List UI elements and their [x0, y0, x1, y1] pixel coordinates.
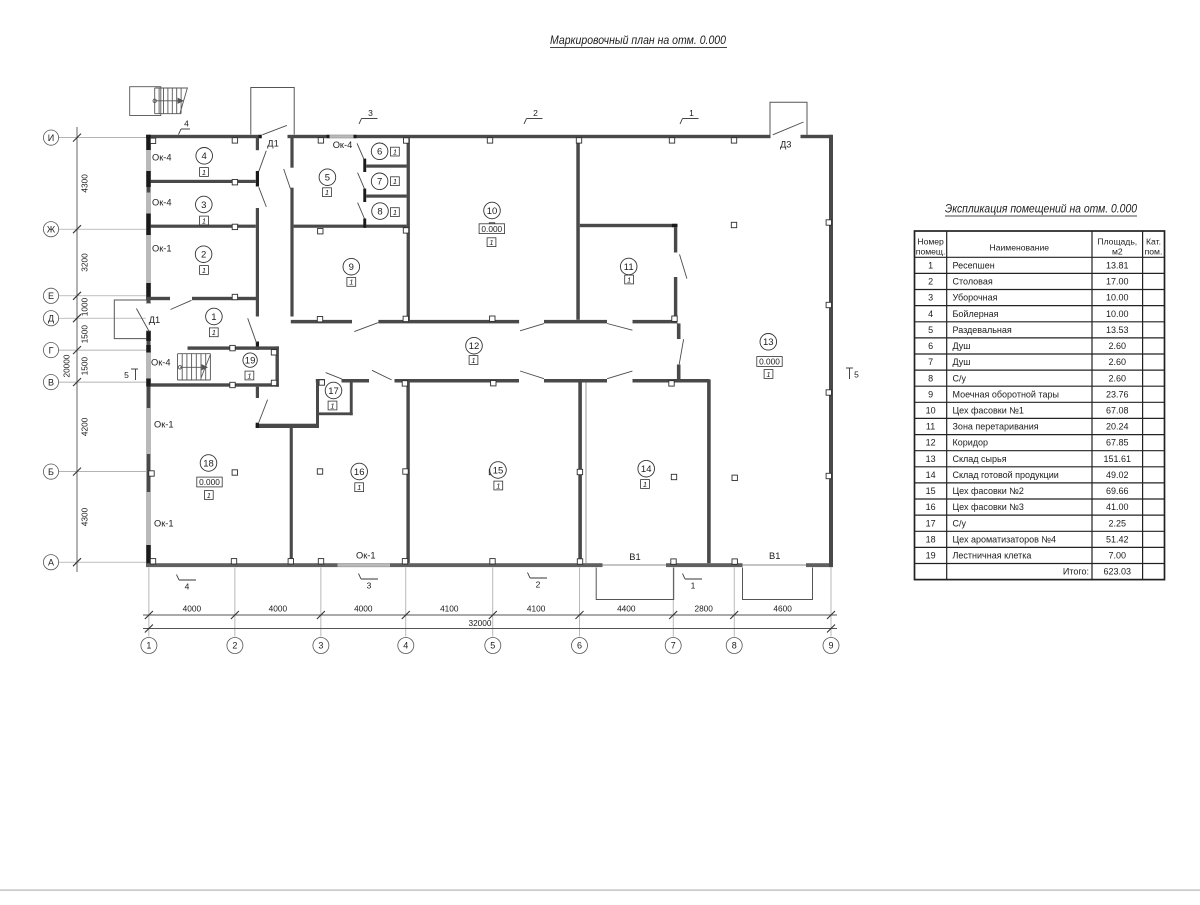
svg-text:2.60: 2.60: [1109, 357, 1127, 367]
svg-text:4600: 4600: [773, 604, 792, 614]
svg-text:Цех ароматизаторов №4: Цех ароматизаторов №4: [953, 534, 1057, 544]
svg-text:16: 16: [926, 502, 936, 512]
svg-text:3200: 3200: [80, 253, 90, 272]
svg-text:0.000: 0.000: [199, 477, 220, 487]
svg-text:3: 3: [368, 108, 373, 118]
svg-text:1: 1: [247, 371, 251, 380]
svg-text:Кат.: Кат.: [1146, 237, 1161, 247]
svg-text:1: 1: [349, 278, 353, 287]
svg-text:1: 1: [211, 312, 216, 323]
svg-text:17.00: 17.00: [1106, 277, 1129, 287]
svg-text:1: 1: [689, 108, 694, 118]
svg-text:С/у: С/у: [953, 518, 967, 528]
svg-text:1: 1: [212, 328, 216, 337]
svg-text:Столовая: Столовая: [953, 277, 993, 287]
svg-text:7: 7: [671, 641, 676, 651]
svg-text:7: 7: [928, 357, 933, 367]
svg-text:2: 2: [201, 250, 206, 261]
svg-text:69.66: 69.66: [1106, 486, 1129, 496]
svg-text:13.53: 13.53: [1106, 325, 1129, 335]
svg-text:Склад готовой продукции: Склад готовой продукции: [953, 470, 1059, 480]
svg-text:19: 19: [245, 356, 256, 367]
svg-text:4200: 4200: [80, 417, 90, 436]
svg-text:14: 14: [641, 464, 652, 475]
svg-text:Коридор: Коридор: [953, 438, 989, 448]
svg-text:11: 11: [926, 422, 935, 432]
svg-text:18: 18: [926, 534, 936, 544]
svg-text:5: 5: [124, 370, 129, 380]
svg-text:3: 3: [201, 200, 206, 211]
svg-text:Площадь,: Площадь,: [1097, 237, 1137, 247]
svg-text:9: 9: [828, 641, 833, 651]
svg-text:1: 1: [330, 401, 334, 410]
svg-text:Экспликация помещений на отм.: Экспликация помещений на отм. 0.000: [945, 204, 1138, 216]
svg-text:Ресепшен: Ресепшен: [953, 261, 995, 271]
svg-text:Раздевальная: Раздевальная: [953, 325, 1012, 335]
svg-text:1500: 1500: [80, 356, 90, 375]
svg-text:9: 9: [349, 262, 354, 273]
svg-text:1: 1: [489, 238, 493, 247]
svg-text:1: 1: [393, 177, 397, 186]
svg-text:1: 1: [496, 481, 500, 490]
svg-text:1: 1: [146, 641, 151, 651]
svg-text:13: 13: [763, 337, 774, 348]
svg-text:9: 9: [928, 389, 933, 399]
svg-text:Д1: Д1: [149, 315, 160, 325]
svg-text:3: 3: [367, 581, 372, 591]
svg-text:2: 2: [536, 580, 541, 590]
svg-text:4000: 4000: [183, 604, 202, 614]
svg-text:4300: 4300: [80, 507, 90, 526]
svg-text:1: 1: [202, 216, 206, 225]
svg-text:Д3: Д3: [780, 140, 791, 150]
svg-text:4000: 4000: [269, 604, 288, 614]
svg-text:17: 17: [328, 386, 339, 397]
svg-text:1: 1: [325, 188, 329, 197]
svg-text:67.08: 67.08: [1106, 406, 1129, 416]
svg-text:Ок-1: Ок-1: [154, 519, 174, 529]
svg-text:Г: Г: [49, 345, 54, 355]
svg-text:Ок-1: Ок-1: [154, 420, 174, 430]
svg-text:Ок-1: Ок-1: [152, 244, 172, 254]
svg-text:Лестничная клетка: Лестничная клетка: [953, 551, 1032, 561]
svg-text:Цех фасовки №2: Цех фасовки №2: [953, 486, 1024, 496]
svg-text:4: 4: [928, 309, 933, 319]
svg-text:17: 17: [926, 518, 936, 528]
svg-text:4100: 4100: [440, 604, 459, 614]
svg-text:3: 3: [318, 641, 323, 651]
svg-text:Ок-1: Ок-1: [356, 551, 376, 561]
svg-text:В1: В1: [769, 551, 780, 561]
svg-text:пом.: пом.: [1145, 247, 1163, 257]
svg-text:1: 1: [207, 491, 211, 500]
svg-text:8: 8: [928, 373, 933, 383]
svg-text:Ж: Ж: [47, 224, 56, 234]
svg-text:32000: 32000: [468, 618, 491, 628]
svg-text:Моечная оборотной тары: Моечная оборотной тары: [953, 389, 1059, 399]
svg-text:Д1: Д1: [267, 139, 278, 149]
svg-text:6: 6: [377, 147, 382, 158]
svg-text:10: 10: [926, 406, 936, 416]
svg-text:2: 2: [928, 277, 933, 287]
svg-text:20000: 20000: [62, 354, 72, 377]
svg-text:12: 12: [926, 438, 936, 448]
svg-text:4300: 4300: [80, 174, 90, 193]
svg-text:151.61: 151.61: [1104, 454, 1132, 464]
svg-text:3: 3: [928, 293, 933, 303]
svg-text:67.85: 67.85: [1106, 438, 1129, 448]
svg-text:7: 7: [377, 177, 382, 188]
svg-text:10: 10: [487, 206, 498, 217]
svg-text:4: 4: [184, 118, 189, 128]
svg-text:1: 1: [393, 208, 397, 217]
svg-text:13: 13: [926, 454, 936, 464]
svg-text:6: 6: [577, 641, 582, 651]
svg-text:18: 18: [203, 458, 214, 469]
svg-text:1: 1: [202, 168, 206, 177]
svg-text:49.02: 49.02: [1106, 470, 1129, 480]
svg-text:4100: 4100: [527, 604, 546, 614]
svg-text:2.60: 2.60: [1109, 341, 1127, 351]
svg-text:23.76: 23.76: [1106, 389, 1129, 399]
svg-text:1000: 1000: [80, 297, 90, 316]
svg-text:Итого:: Итого:: [1063, 567, 1089, 577]
svg-text:2.25: 2.25: [1109, 518, 1127, 528]
svg-text:Маркировочный план на отм. 0.0: Маркировочный план на отм. 0.000: [550, 35, 727, 47]
svg-text:15: 15: [926, 486, 936, 496]
svg-text:2.60: 2.60: [1109, 373, 1127, 383]
svg-text:8: 8: [732, 641, 737, 651]
svg-text:2800: 2800: [694, 604, 713, 614]
svg-text:4400: 4400: [617, 604, 636, 614]
svg-text:1500: 1500: [80, 325, 90, 344]
svg-text:Ок-4: Ок-4: [151, 358, 171, 368]
svg-text:Ок-4: Ок-4: [152, 198, 172, 208]
svg-text:4: 4: [202, 151, 207, 162]
svg-text:Душ: Душ: [953, 341, 971, 351]
svg-text:Цех фасовки №1: Цех фасовки №1: [953, 406, 1024, 416]
svg-text:Е: Е: [48, 291, 54, 301]
svg-text:51.42: 51.42: [1106, 534, 1129, 544]
svg-text:Ок-4: Ок-4: [152, 153, 172, 163]
svg-text:В1: В1: [629, 552, 640, 562]
svg-text:10.00: 10.00: [1106, 309, 1129, 319]
svg-text:Наименование: Наименование: [990, 243, 1050, 253]
svg-text:Склад сырья: Склад сырья: [953, 454, 1007, 464]
svg-text:Душ: Душ: [953, 357, 971, 367]
svg-text:1: 1: [928, 261, 933, 271]
svg-text:И: И: [48, 133, 54, 143]
svg-text:Ок-4: Ок-4: [333, 140, 353, 150]
svg-text:15: 15: [493, 465, 504, 476]
svg-text:10.00: 10.00: [1106, 293, 1129, 303]
svg-text:Номер: Номер: [917, 237, 944, 247]
svg-text:В: В: [48, 377, 54, 387]
svg-text:14: 14: [926, 470, 936, 480]
svg-text:623.03: 623.03: [1104, 567, 1132, 577]
svg-text:12: 12: [469, 341, 480, 352]
svg-text:Д: Д: [48, 313, 54, 323]
svg-text:7.00: 7.00: [1109, 551, 1127, 561]
svg-text:м2: м2: [1112, 247, 1123, 257]
svg-text:5: 5: [490, 641, 495, 651]
svg-text:2: 2: [533, 108, 538, 118]
svg-text:Б: Б: [48, 467, 54, 477]
svg-text:8: 8: [377, 207, 382, 218]
svg-text:1: 1: [471, 356, 475, 365]
svg-text:20.24: 20.24: [1106, 422, 1129, 432]
svg-text:13.81: 13.81: [1106, 261, 1129, 271]
svg-text:19: 19: [926, 551, 936, 561]
svg-text:Зона перетаривания: Зона перетаривания: [953, 422, 1039, 432]
svg-text:0.000: 0.000: [481, 224, 502, 234]
svg-text:1: 1: [202, 266, 206, 275]
svg-text:1: 1: [766, 370, 770, 379]
svg-text:11: 11: [624, 262, 634, 273]
svg-text:0.000: 0.000: [759, 357, 780, 367]
svg-text:Бойлерная: Бойлерная: [953, 309, 999, 319]
svg-text:помещ.: помещ.: [916, 247, 946, 257]
svg-text:5: 5: [928, 325, 933, 335]
svg-text:4: 4: [403, 641, 408, 651]
svg-text:1: 1: [627, 275, 631, 284]
svg-text:С/у: С/у: [953, 373, 967, 383]
svg-text:5: 5: [854, 370, 859, 380]
svg-text:1: 1: [393, 147, 397, 156]
svg-text:Цех фасовки №3: Цех фасовки №3: [953, 502, 1024, 512]
svg-text:1: 1: [357, 483, 361, 492]
svg-text:Уборочная: Уборочная: [953, 293, 998, 303]
svg-text:2: 2: [232, 641, 237, 651]
svg-text:1: 1: [643, 480, 647, 489]
svg-text:16: 16: [354, 467, 365, 478]
svg-text:5: 5: [325, 173, 330, 184]
svg-text:А: А: [48, 557, 54, 567]
svg-text:41.00: 41.00: [1106, 502, 1129, 512]
svg-text:4: 4: [185, 582, 190, 592]
svg-text:1: 1: [691, 581, 696, 591]
svg-text:6: 6: [928, 341, 933, 351]
svg-text:4000: 4000: [354, 604, 373, 614]
